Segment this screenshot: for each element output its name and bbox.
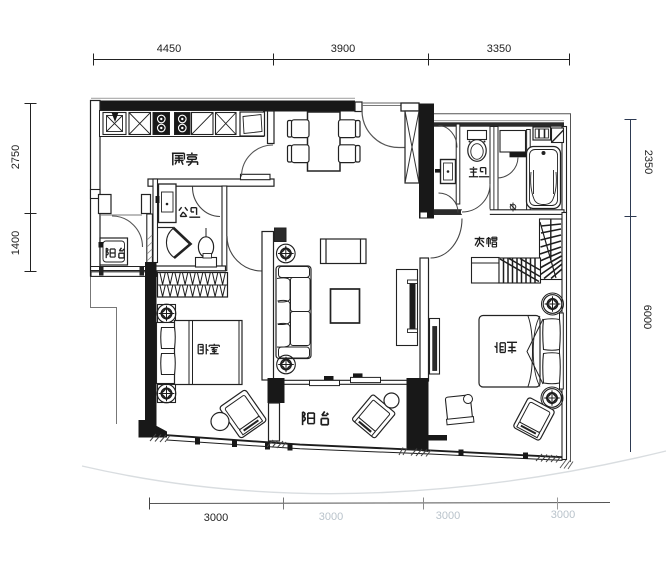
svg-text:3000: 3000 <box>319 511 343 523</box>
svg-text:3900: 3900 <box>331 43 355 55</box>
svg-text:2350: 2350 <box>642 150 654 174</box>
svg-text:4450: 4450 <box>157 43 181 55</box>
svg-text:3000: 3000 <box>204 512 228 524</box>
svg-text:2750: 2750 <box>10 145 22 169</box>
svg-text:3000: 3000 <box>551 509 575 521</box>
svg-text:1400: 1400 <box>10 231 22 255</box>
svg-text:3350: 3350 <box>487 43 511 55</box>
svg-text:6000: 6000 <box>641 305 653 329</box>
svg-text:3000: 3000 <box>436 510 460 522</box>
